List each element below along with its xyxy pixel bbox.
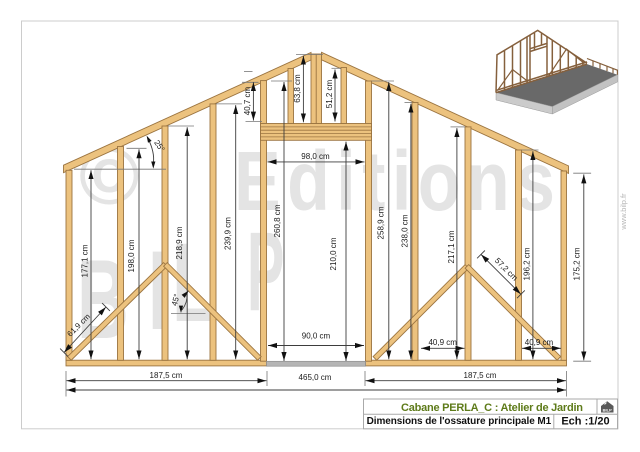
svg-text:187,5 cm: 187,5 cm — [464, 371, 497, 380]
svg-text:98,0 cm: 98,0 cm — [301, 152, 330, 161]
svg-text:258,9 cm: 258,9 cm — [376, 206, 385, 239]
svg-text:187,5 cm: 187,5 cm — [150, 371, 183, 380]
svg-text:239,9 cm: 239,9 cm — [224, 217, 233, 250]
svg-text:Ech :1/20: Ech :1/20 — [561, 416, 609, 428]
svg-text:260,8 cm: 260,8 cm — [273, 204, 282, 237]
svg-text:196,2 cm: 196,2 cm — [523, 247, 532, 280]
svg-text:Dimensions de l'ossature princ: Dimensions de l'ossature principale M1 — [367, 416, 552, 427]
svg-text:Cabane PERLA_C : Atelier de Ja: Cabane PERLA_C : Atelier de Jardin — [401, 402, 583, 414]
svg-text:BILP: BILP — [603, 408, 612, 413]
svg-text:218,9 cm: 218,9 cm — [175, 226, 184, 259]
svg-text:40,9 cm: 40,9 cm — [428, 338, 457, 347]
svg-text:198,0 cm: 198,0 cm — [127, 239, 136, 272]
svg-text:177,1 cm: 177,1 cm — [81, 244, 90, 277]
svg-text:210,0 cm: 210,0 cm — [329, 237, 338, 270]
svg-text:217,1 cm: 217,1 cm — [447, 230, 456, 263]
svg-text:40,9 cm: 40,9 cm — [525, 338, 554, 347]
svg-text:51,2 cm: 51,2 cm — [325, 79, 334, 108]
svg-text:175,2 cm: 175,2 cm — [573, 247, 582, 280]
svg-text:238,0 cm: 238,0 cm — [401, 214, 410, 247]
svg-text:www.bilp.fr: www.bilp.fr — [619, 193, 628, 231]
svg-text:40,7 cm: 40,7 cm — [243, 86, 252, 115]
svg-text:63,8 cm: 63,8 cm — [293, 74, 302, 103]
svg-text:90,0 cm: 90,0 cm — [302, 332, 331, 341]
svg-text:465,0 cm: 465,0 cm — [299, 373, 332, 382]
